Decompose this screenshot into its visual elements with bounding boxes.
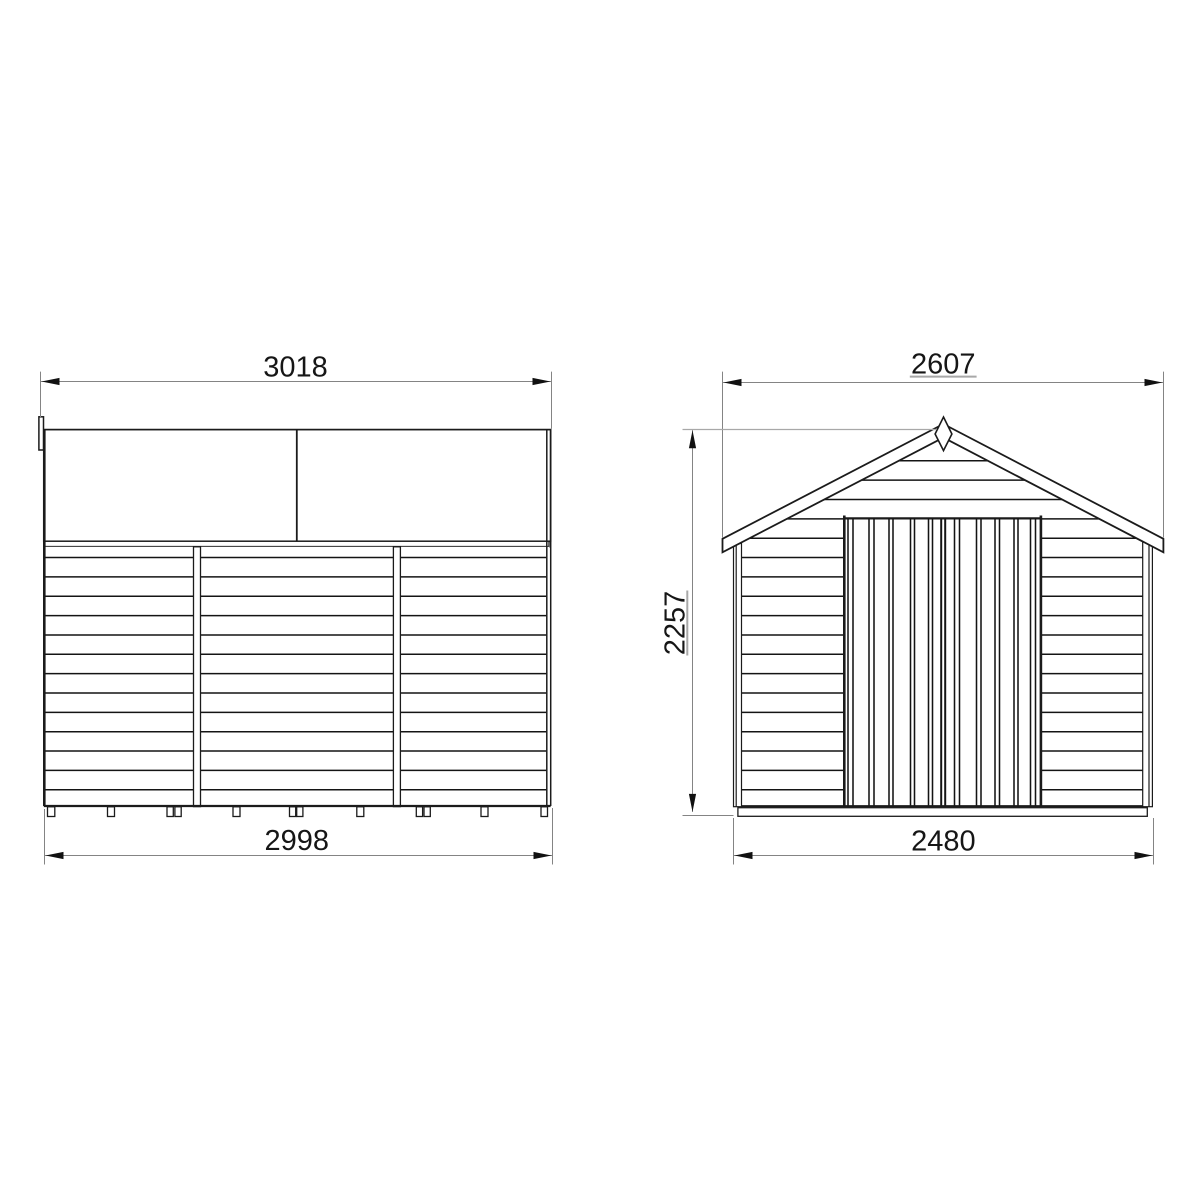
svg-text:3018: 3018	[263, 351, 328, 383]
svg-text:2998: 2998	[264, 825, 329, 857]
svg-text:2480: 2480	[911, 826, 976, 858]
